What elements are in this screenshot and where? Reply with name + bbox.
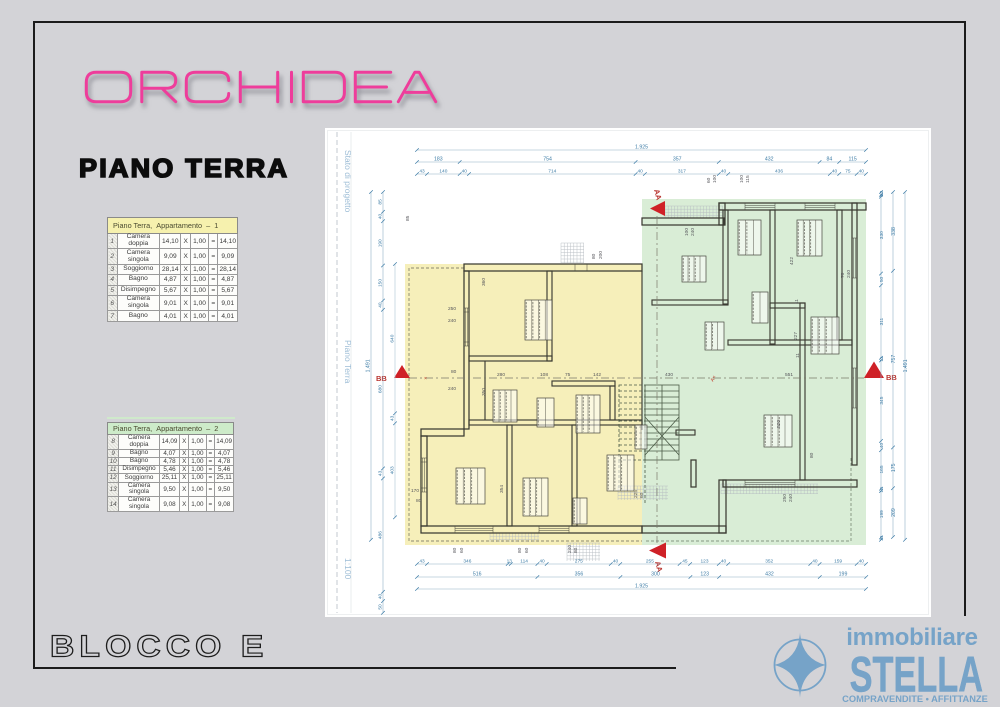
svg-text:84: 84: [827, 157, 833, 163]
svg-text:190: 190: [377, 239, 383, 247]
svg-text:40: 40: [812, 559, 818, 565]
svg-text:80: 80: [517, 547, 523, 553]
svg-text:1:100: 1:100: [343, 558, 353, 580]
svg-text:80: 80: [451, 369, 457, 375]
svg-text:85: 85: [405, 215, 411, 221]
svg-text:40: 40: [638, 169, 644, 175]
svg-text:BB: BB: [376, 374, 387, 383]
svg-text:150: 150: [377, 279, 383, 287]
svg-text:516: 516: [473, 572, 482, 578]
svg-text:240: 240: [448, 318, 456, 324]
svg-text:123: 123: [700, 559, 708, 565]
svg-text:757: 757: [891, 355, 897, 364]
svg-text:10: 10: [879, 536, 885, 542]
svg-text:165: 165: [879, 465, 885, 473]
svg-text:350: 350: [481, 388, 487, 396]
svg-text:352: 352: [765, 559, 773, 565]
svg-text:300: 300: [651, 572, 660, 578]
svg-text:240: 240: [690, 228, 696, 236]
svg-text:60: 60: [639, 492, 645, 498]
svg-text:227: 227: [793, 332, 799, 340]
svg-text:175: 175: [891, 463, 897, 472]
svg-text:43: 43: [419, 559, 425, 565]
svg-text:40: 40: [462, 169, 468, 175]
svg-text:551: 551: [785, 372, 793, 378]
svg-text:430: 430: [665, 372, 673, 378]
svg-text:250: 250: [448, 306, 456, 312]
svg-text:43: 43: [419, 169, 425, 175]
svg-text:486: 486: [377, 531, 383, 539]
svg-text:108: 108: [540, 372, 548, 378]
svg-text:250: 250: [782, 494, 788, 502]
svg-text:40: 40: [859, 169, 865, 175]
svg-text:43: 43: [389, 415, 395, 421]
svg-text:345: 345: [879, 396, 885, 404]
svg-text:1.925: 1.925: [635, 145, 648, 151]
svg-text:40: 40: [539, 559, 545, 565]
svg-text:40: 40: [832, 169, 838, 175]
svg-text:140: 140: [439, 169, 447, 175]
svg-text:60: 60: [706, 177, 712, 183]
svg-text:11: 11: [879, 356, 885, 361]
svg-text:255: 255: [646, 559, 654, 565]
svg-text:40: 40: [879, 443, 885, 449]
svg-text:10: 10: [879, 487, 885, 493]
svg-text:240: 240: [567, 545, 573, 553]
svg-text:240: 240: [788, 494, 794, 502]
svg-text:640: 640: [389, 334, 395, 342]
svg-text:40: 40: [377, 594, 383, 600]
svg-text:680: 680: [377, 385, 383, 393]
svg-text:275: 275: [575, 559, 583, 565]
svg-text:432: 432: [765, 157, 774, 163]
svg-text:100: 100: [739, 175, 745, 183]
svg-text:183: 183: [434, 157, 443, 163]
svg-text:40: 40: [721, 559, 727, 565]
svg-text:209: 209: [891, 508, 897, 517]
svg-text:225: 225: [633, 490, 639, 498]
svg-text:100: 100: [712, 175, 718, 183]
svg-text:75: 75: [845, 169, 851, 175]
svg-text:714: 714: [548, 169, 556, 175]
svg-text:432: 432: [765, 572, 774, 578]
svg-text:240: 240: [448, 386, 456, 392]
svg-text:11: 11: [795, 353, 801, 358]
svg-text:13: 13: [507, 559, 513, 565]
svg-text:520: 520: [776, 420, 782, 428]
svg-text:8: 8: [879, 194, 885, 197]
svg-text:80: 80: [452, 547, 458, 553]
svg-text:75: 75: [565, 372, 571, 378]
svg-text:1.491: 1.491: [903, 359, 909, 372]
svg-text:45: 45: [682, 559, 688, 565]
svg-text:354: 354: [499, 485, 505, 493]
svg-text:80: 80: [573, 547, 579, 553]
svg-text:240: 240: [846, 270, 852, 278]
svg-text:11: 11: [794, 299, 800, 304]
svg-text:142: 142: [593, 372, 601, 378]
svg-text:199: 199: [839, 572, 848, 578]
svg-text:199: 199: [879, 510, 885, 518]
svg-text:200: 200: [598, 251, 604, 259]
svg-text:422: 422: [789, 257, 795, 265]
svg-text:436: 436: [775, 169, 783, 175]
svg-text:50: 50: [377, 604, 383, 610]
svg-text:43: 43: [377, 470, 383, 476]
svg-text:115: 115: [745, 175, 751, 183]
svg-text:114: 114: [520, 559, 528, 565]
svg-text:360: 360: [481, 278, 487, 286]
svg-text:×: ×: [424, 376, 427, 382]
svg-text:40: 40: [377, 302, 383, 308]
svg-text:40: 40: [859, 559, 865, 565]
svg-text:BB: BB: [886, 373, 897, 382]
svg-text:159: 159: [834, 559, 842, 565]
svg-text:754: 754: [543, 157, 552, 163]
svg-text:80: 80: [416, 498, 422, 504]
svg-text:40: 40: [377, 214, 383, 220]
svg-text:60: 60: [459, 547, 465, 553]
svg-text:403: 403: [389, 466, 395, 474]
svg-text:40: 40: [721, 169, 727, 175]
svg-text:356: 356: [575, 572, 584, 578]
svg-text:280: 280: [497, 372, 505, 378]
svg-text:1.491: 1.491: [365, 359, 371, 372]
svg-text:338: 338: [891, 227, 897, 236]
svg-text:346: 346: [463, 559, 471, 565]
svg-text:311: 311: [879, 317, 885, 325]
svg-text:100: 100: [684, 228, 690, 236]
svg-text:Piano Terra: Piano Terra: [343, 340, 353, 384]
svg-text:357: 357: [673, 157, 682, 163]
svg-text:1.925: 1.925: [635, 584, 648, 590]
svg-text:170: 170: [411, 488, 419, 494]
svg-text:60: 60: [524, 547, 530, 553]
svg-text:50: 50: [879, 277, 885, 283]
svg-text:123: 123: [700, 572, 709, 578]
svg-text:Stato di progetto: Stato di progetto: [343, 150, 353, 213]
svg-text:115: 115: [848, 157, 856, 163]
svg-text:317: 317: [678, 169, 686, 175]
svg-text:40: 40: [613, 559, 619, 565]
svg-text:85: 85: [377, 199, 383, 205]
svg-text:70: 70: [840, 272, 846, 278]
svg-text:330: 330: [879, 231, 885, 239]
svg-text:80: 80: [591, 253, 597, 259]
svg-text:80: 80: [809, 452, 815, 458]
